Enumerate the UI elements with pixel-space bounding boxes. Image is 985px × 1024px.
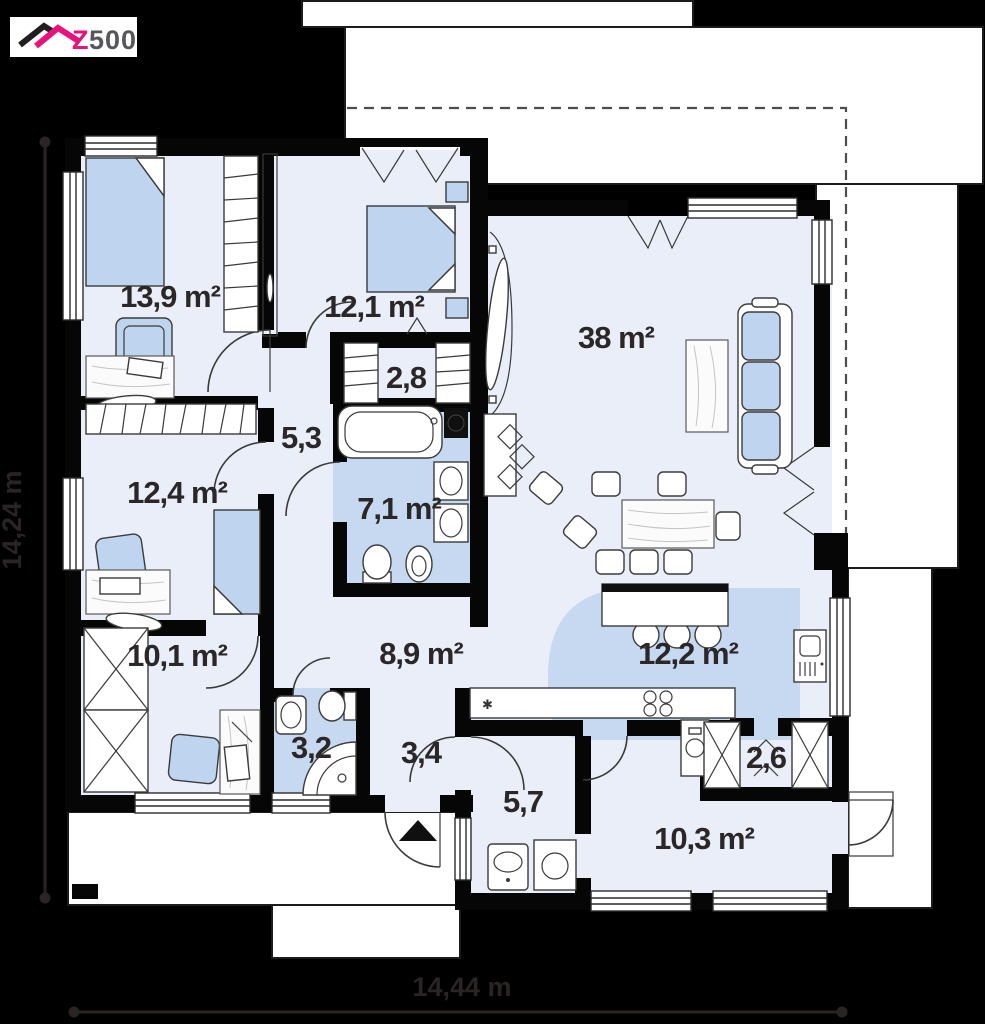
wardrobe-rail-long — [86, 404, 256, 434]
washing-machine — [534, 840, 576, 890]
front-steps — [272, 905, 460, 958]
bathtub — [338, 406, 442, 458]
dimension-height: 14,24 m — [0, 137, 50, 903]
washbasin — [276, 696, 306, 734]
floor-plan-drawing: ✱ — [0, 0, 985, 1024]
bed-single — [214, 510, 260, 614]
window — [591, 891, 691, 911]
floor-plan-page: ✱ — [0, 0, 985, 1024]
room-label-bedroom-2: 12,1 m² — [324, 289, 425, 324]
room-label-hall: 5,3 — [281, 420, 322, 455]
room-label-bedroom-3: 12,4 m² — [127, 475, 228, 510]
terrace — [816, 184, 958, 568]
coffee-table — [686, 340, 728, 432]
kitchen-counter: ✱ — [470, 688, 735, 718]
window — [63, 478, 83, 570]
logo-text-z: Z — [72, 25, 89, 55]
laundry-sink — [488, 844, 528, 890]
room-label-kitchen: 12,2 m² — [638, 636, 739, 671]
window — [63, 172, 83, 320]
window — [272, 793, 330, 813]
fridge — [794, 630, 826, 682]
porch-post — [72, 884, 98, 899]
desk — [220, 710, 260, 794]
room-label-shower-room: 3,2 — [291, 730, 331, 765]
nightstand — [446, 182, 468, 202]
pantry-door-gap — [754, 714, 778, 740]
room-label-entry-hall: 3,4 — [401, 735, 443, 770]
window — [688, 198, 797, 218]
room-label-utility-room: 5,7 — [503, 784, 543, 819]
wardrobe-rail — [224, 156, 258, 332]
room-label-corridor: 8,9 m² — [379, 636, 463, 671]
front-porch — [68, 812, 460, 905]
window — [713, 891, 827, 911]
window — [455, 818, 471, 880]
room-label-bedroom-1: 13,9 m² — [120, 279, 221, 314]
bed-double-1 — [86, 158, 164, 286]
room-label-wardrobe: 2,8 — [386, 360, 427, 395]
window — [85, 136, 157, 156]
side-walkway — [848, 568, 932, 908]
room-label-living-room: 38 m² — [578, 320, 655, 355]
counter-marker: ✱ — [482, 698, 493, 713]
roof-outline-top-bar — [302, 1, 693, 27]
armchair — [168, 734, 221, 785]
room-label-bathroom: 7,1 m² — [357, 491, 441, 526]
window — [135, 793, 250, 813]
window — [812, 220, 832, 284]
toilet — [319, 691, 356, 721]
room-label-pantry: 2,6 — [746, 740, 787, 775]
room-label-office: 10,1 m² — [127, 638, 228, 673]
nightstand — [446, 298, 468, 318]
height-dimension-label: 14,24 m — [0, 470, 27, 569]
room-label-storage-room: 10,3 m² — [654, 821, 755, 856]
sofa — [738, 298, 792, 474]
bidet — [406, 546, 432, 582]
window — [830, 598, 850, 716]
toilet — [363, 545, 391, 583]
dimension-width: 14,44 m — [69, 972, 847, 1017]
logo-text-500: 500 — [89, 25, 137, 55]
bed-double-2 — [367, 206, 455, 292]
z500-logo: Z 500 — [10, 17, 137, 57]
width-dimension-label: 14,44 m — [412, 972, 511, 1002]
